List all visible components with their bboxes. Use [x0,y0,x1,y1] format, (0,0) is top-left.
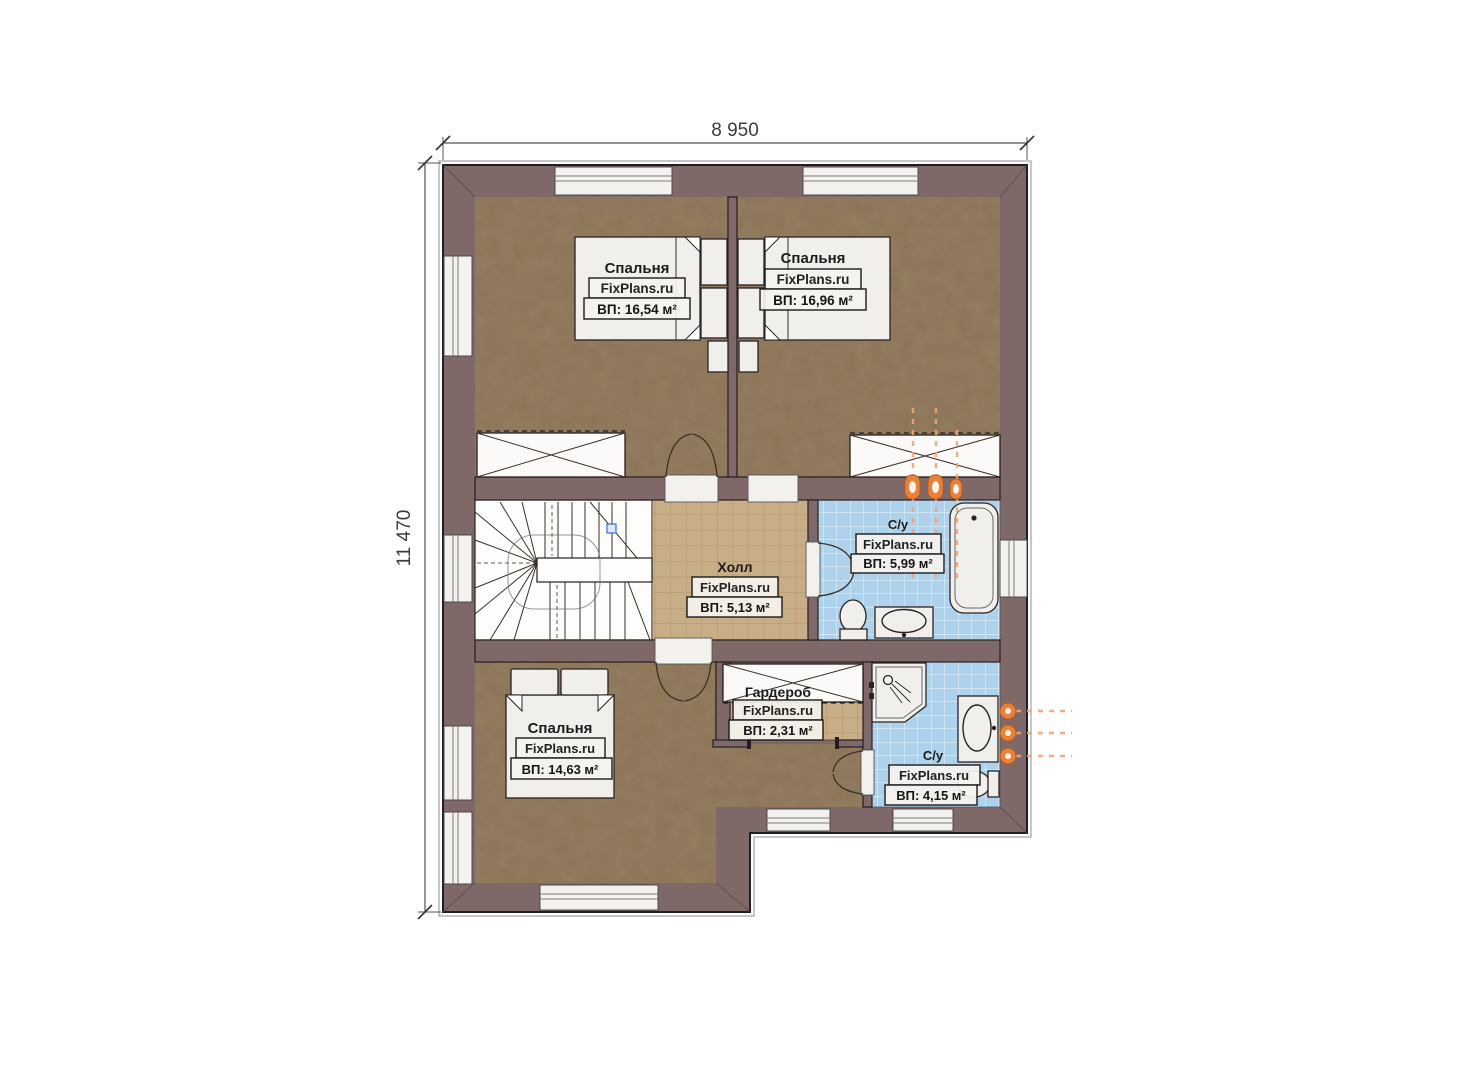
watermark-label: FixPlans.ru [863,537,933,552]
nightstand [738,239,764,285]
window [893,809,953,831]
shower [869,663,926,722]
door-threshold [861,750,874,795]
watermark-label: FixPlans.ru [899,768,969,783]
dimension-left: 11 470 [394,156,441,919]
watermark-label: FixPlans.ru [601,281,674,296]
room-area: ВП: 2,31 м² [743,723,813,738]
dimension-width-label: 8 950 [711,120,759,141]
room-area: ВП: 16,54 м² [597,302,677,317]
sink [958,696,998,762]
toilet [840,600,867,640]
stair-marker [607,524,616,533]
pillow [511,669,558,695]
door-threshold [655,638,712,664]
watermark-label: FixPlans.ru [777,272,850,287]
window [540,885,658,910]
dresser [739,341,758,372]
door-threshold [665,475,718,502]
room-name: Спальня [605,260,670,277]
room-area: ВП: 16,96 м² [773,293,853,308]
nightstand [701,288,727,338]
room-name: Спальня [528,720,593,737]
room-area: ВП: 5,13 м² [700,600,770,615]
floor-plan-svg: Спальня FixPlans.ru ВП: 16,54 м² Спальня… [0,0,1473,1080]
window [767,809,830,831]
room-name: Гардероб [745,684,812,700]
dresser [708,341,728,372]
room-name: Холл [717,559,752,575]
room-name: Спальня [781,250,846,267]
room-area: ВП: 14,63 м² [522,762,599,777]
dimension-height-label: 11 470 [394,510,415,567]
door-threshold [806,542,820,597]
floor-plan-canvas: Спальня FixPlans.ru ВП: 16,54 м² Спальня… [0,0,1473,1080]
watermark-label: FixPlans.ru [525,741,595,756]
dimension-top: 8 950 [436,120,1034,160]
nightstand [701,239,727,285]
door-threshold [748,475,798,502]
pillow [561,669,608,695]
room-name: С/у [888,517,909,532]
sink [875,607,933,638]
room-area: ВП: 5,99 м² [863,556,933,571]
watermark-label: FixPlans.ru [743,703,813,718]
watermark-label: FixPlans.ru [700,580,770,595]
room-area: ВП: 4,15 м² [896,788,966,803]
room-name: С/у [923,748,944,763]
